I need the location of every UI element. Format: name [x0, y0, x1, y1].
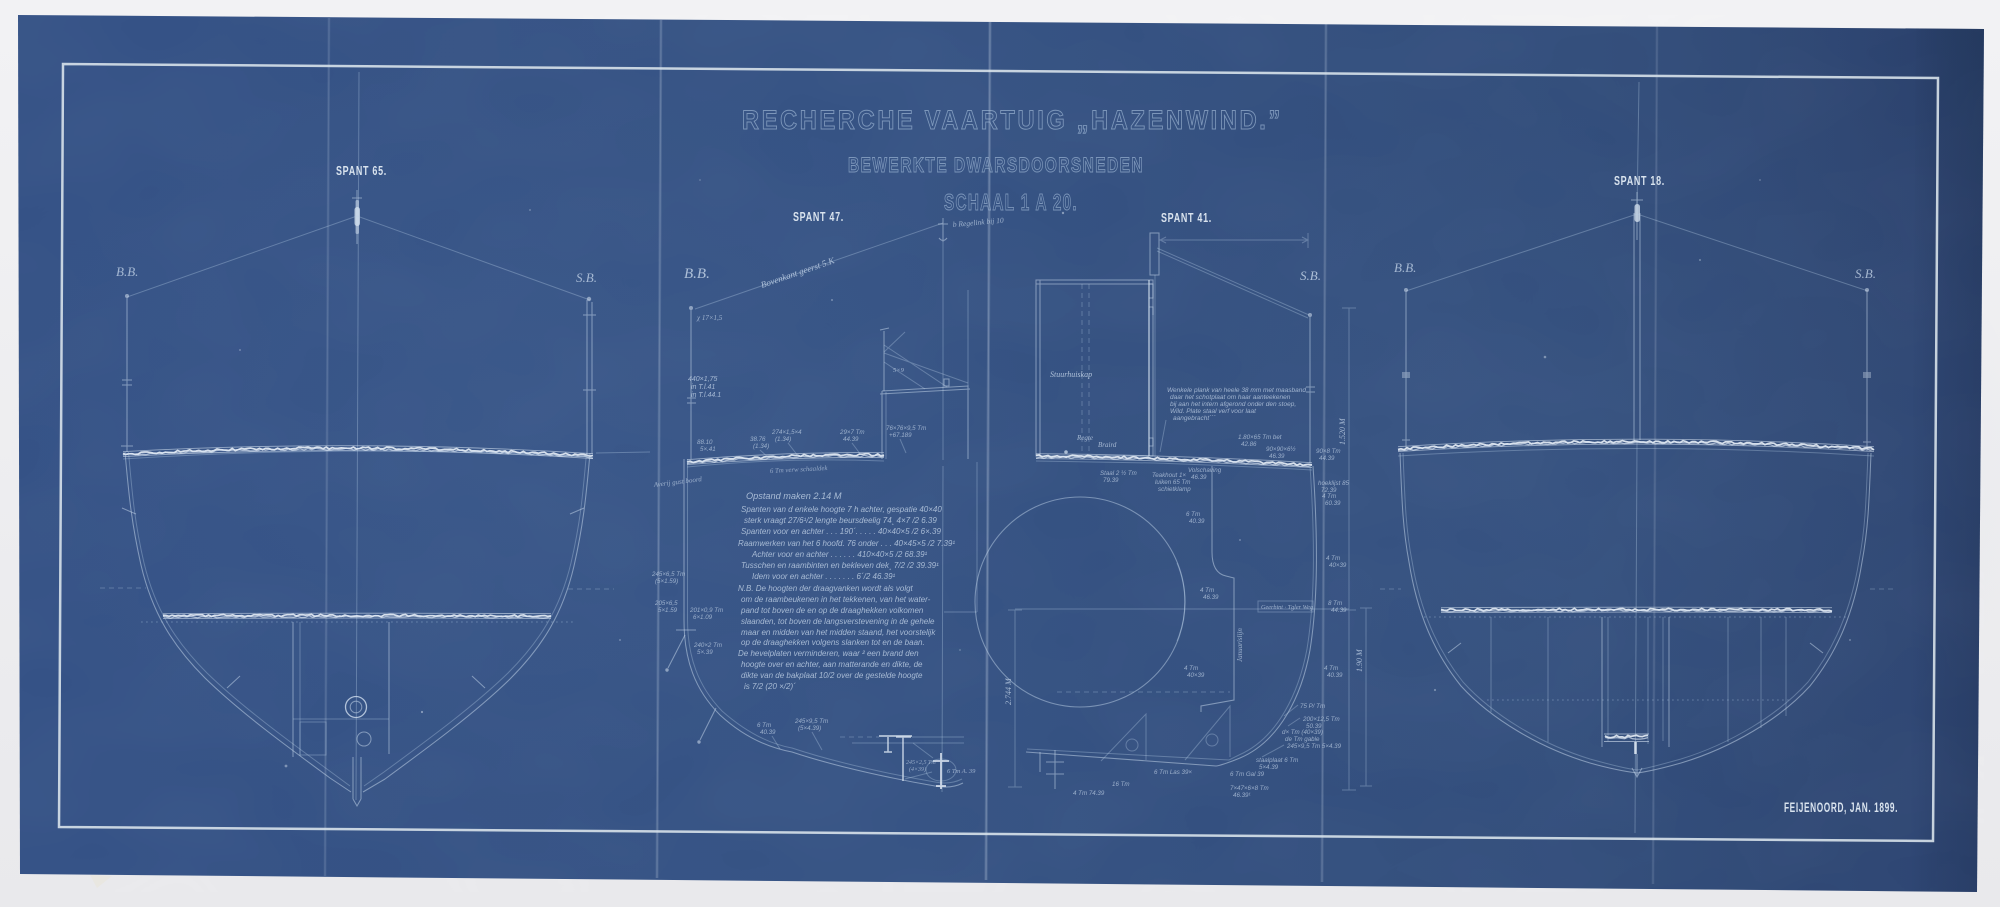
svg-text:5×4.39: 5×4.39 [1259, 764, 1279, 771]
svg-text:5×.41: 5×.41 [700, 446, 716, 453]
svg-text:pand tot boven de en op de dra: pand tot boven de en op de draaghekken v… [740, 606, 924, 615]
svg-text:46.39: 46.39 [1269, 453, 1285, 460]
svg-text:75 P/ Tm: 75 P/ Tm [1300, 703, 1325, 710]
svg-text:daar het schotplaat om haar aa: daar het schotplaat om haar aanteekenen [1170, 394, 1291, 401]
svg-text:maar en midden van het midden: maar en midden van het midden staand, he… [741, 628, 936, 637]
svg-text:4 Tm: 4 Tm [1200, 587, 1214, 594]
svg-text:in T.l.44.1: in T.l.44.1 [691, 392, 721, 399]
svg-text:(5×1.59): (5×1.59) [655, 578, 678, 585]
svg-text:Wenkele plank van heele 38 mm: Wenkele plank van heele 38 mm met maasba… [1167, 387, 1306, 394]
svg-text:Raamwerken van het 6 hoofd. 76: Raamwerken van het 6 hoofd. 76 onder . .… [738, 539, 955, 548]
svg-text:+67.189: +67.189 [889, 432, 912, 439]
svg-text:BEWERKTE DWARSDOORSNEDEN: BEWERKTE DWARSDOORSNEDEN [848, 153, 1144, 177]
svg-text:2.744 M: 2.744 M [1004, 677, 1013, 705]
svg-text:4 Tm: 4 Tm [1184, 665, 1198, 672]
svg-text:6 Tm A. 39: 6 Tm A. 39 [947, 768, 976, 775]
svg-text:200×12,5 Tm: 200×12,5 Tm [1302, 716, 1340, 723]
svg-text:SPANT 65.: SPANT 65. [336, 164, 387, 178]
svg-text:1.90 M: 1.90 M [1355, 648, 1364, 672]
svg-text:Regte: Regte [1076, 434, 1093, 442]
svg-text:6×1.09: 6×1.09 [693, 614, 713, 621]
svg-text:40.39: 40.39 [1327, 672, 1343, 679]
svg-text:om de raambeukenen in het tekk: om de raambeukenen in het tekkenen, van … [741, 595, 931, 604]
svg-text:Tusschen en raambinten en bekl: Tusschen en raambinten en bekleven dek¸ … [741, 561, 939, 570]
svg-text:6 Tm Las 39×: 6 Tm Las 39× [1154, 769, 1192, 776]
svg-text:245×6,5 Tm: 245×6,5 Tm [651, 571, 685, 578]
svg-text:Achter voor en achter . . . .: Achter voor en achter . . . . . . 410×40… [751, 550, 928, 559]
svg-text:S.B.: S.B. [1855, 266, 1876, 281]
svg-text:8 Tm: 8 Tm [1328, 600, 1342, 607]
svg-text:40×39: 40×39 [1187, 672, 1205, 679]
svg-text:4 Tm: 4 Tm [1326, 555, 1340, 562]
svg-text:90×90×6½: 90×90×6½ [1266, 446, 1296, 453]
svg-text:4 Tm: 4 Tm [1322, 493, 1336, 500]
svg-text:SPANT 18.: SPANT 18. [1614, 174, 1665, 188]
svg-text:6 Tm: 6 Tm [757, 722, 771, 729]
svg-text:4 Tm 74.39: 4 Tm 74.39 [1073, 790, 1105, 797]
svg-text:16 Tm: 16 Tm [1112, 781, 1130, 788]
svg-text:dikte van de bakplaat 10/2 ove: dikte van de bakplaat 10/2 over de geste… [741, 671, 923, 680]
svg-text:(1.34): (1.34) [775, 436, 791, 443]
svg-text:29×7 Tm: 29×7 Tm [839, 429, 865, 436]
svg-text:1.80×65 Tm bet: 1.80×65 Tm bet [1238, 434, 1282, 441]
svg-text:is 7/2 (20 ×/2)´: is 7/2 (20 ×/2)´ [744, 682, 796, 691]
svg-text:SCHAAL 1 A 20.: SCHAAL 1 A 20. [944, 189, 1078, 215]
svg-text:79.39: 79.39 [1103, 477, 1119, 484]
svg-text:(1.34): (1.34) [753, 443, 769, 450]
svg-text:Spanten voor en achter . . .: Spanten voor en achter . . . 190´. . . .… [741, 527, 941, 536]
svg-text:χ 17×1,5: χ 17×1,5 [696, 314, 723, 322]
svg-text:245×2,5 Tm: 245×2,5 Tm [906, 759, 936, 766]
svg-text:S.B.: S.B. [1300, 268, 1321, 283]
svg-text:De hevelplaten verminderen, wa: De hevelplaten verminderen, waar ² een b… [738, 649, 919, 658]
svg-text:76×76×9,5 Tm: 76×76×9,5 Tm [886, 425, 926, 432]
svg-text:B.B.: B.B. [1394, 260, 1416, 275]
svg-text:Wild. Plate staal verf voor la: Wild. Plate staal verf voor laat [1170, 408, 1257, 415]
svg-text:44.39: 44.39 [1319, 455, 1335, 462]
svg-text:bij aan het intern afgerond on: bij aan het intern afgerond onder den st… [1170, 401, 1296, 408]
svg-text:90×8 Tm: 90×8 Tm [1316, 448, 1341, 455]
svg-text:Stuurhuiskap: Stuurhuiskap [1050, 370, 1092, 379]
svg-text:Januarislijn: Januarislijn [1236, 628, 1244, 662]
svg-text:88.10: 88.10 [697, 439, 713, 446]
svg-text:46.39¹: 46.39¹ [1233, 792, 1251, 799]
svg-text:44.39: 44.39 [843, 436, 859, 443]
svg-text:Spanten van d enkele hoogte 7: Spanten van d enkele hoogte 7 h achter, … [741, 505, 942, 514]
svg-text:Geerbint · Tgler Weg: Geerbint · Tgler Weg [1261, 604, 1313, 611]
svg-text:Teakhout 1×: Teakhout 1× [1152, 472, 1186, 479]
svg-text:245×9,5 Tm 5×4.39: 245×9,5 Tm 5×4.39 [1286, 743, 1342, 750]
svg-text:46.39: 46.39 [1203, 594, 1219, 601]
svg-text:de Tm gable: de Tm gable [1285, 736, 1320, 743]
svg-text:Volschaving: Volschaving [1188, 467, 1222, 474]
svg-text:44.39: 44.39 [1331, 607, 1347, 614]
svg-text:op de draaghekken volgens slan: op de draaghekken volgens slanken tot en… [741, 638, 925, 647]
svg-text:RECHERCHE VAARTUIG „HAZENWIND.: RECHERCHE VAARTUIG „HAZENWIND.” [742, 105, 1283, 135]
svg-text:S.B.: S.B. [576, 270, 597, 285]
svg-text:4 Tm: 4 Tm [1324, 665, 1338, 672]
svg-text:(4×39): (4×39) [909, 766, 926, 773]
svg-text:in T.l.41: in T.l.41 [691, 384, 715, 391]
svg-text:luiken 65 Tm: luiken 65 Tm [1155, 479, 1190, 486]
svg-text:hoogte over en achter, aan mat: hoogte over en achter, aan matterande en… [741, 660, 923, 669]
svg-text:7×47×6×8 Tm: 7×47×6×8 Tm [1230, 785, 1269, 792]
svg-text:42.86: 42.86 [1241, 441, 1257, 448]
svg-text:Idem voor en achter . . . .: Idem voor en achter . . . . . . . 6´/2 4… [752, 572, 896, 581]
svg-text:40×39: 40×39 [1329, 562, 1347, 569]
svg-text:60.39: 60.39 [1325, 500, 1341, 507]
svg-text:Braird: Braird [1098, 441, 1117, 449]
svg-text:5×1.59: 5×1.59 [658, 607, 678, 614]
svg-text:hoeklijst 85: hoeklijst 85 [1318, 480, 1350, 487]
svg-text:205×6,5: 205×6,5 [654, 600, 678, 607]
svg-text:201×0,9 Tm: 201×0,9 Tm [689, 607, 723, 614]
svg-text:slaanden, tot boven de langsve: slaanden, tot boven de langsverstevening… [741, 617, 935, 626]
svg-text:440×1,75: 440×1,75 [688, 376, 717, 383]
svg-text:FEIJENOORD, JAN. 1899.: FEIJENOORD, JAN. 1899. [1784, 800, 1898, 815]
svg-text:schietklamp: schietklamp [1158, 486, 1191, 493]
svg-text:38.76: 38.76 [750, 436, 766, 443]
svg-text:aangebracht´´´: aangebracht´´´ [1173, 415, 1216, 422]
svg-text:B.B.: B.B. [116, 264, 138, 279]
svg-text:Opstand maken 2.14 M: Opstand maken 2.14 M [746, 491, 842, 501]
svg-text:staalplaat 6 Tm: staalplaat 6 Tm [1256, 757, 1298, 764]
svg-text:sterk vraagt 27/6¹/2 lengte be: sterk vraagt 27/6¹/2 lengte beursdeelig … [744, 516, 937, 525]
svg-text:274×1,5×4: 274×1,5×4 [771, 429, 802, 436]
svg-text:(5×4.39): (5×4.39) [798, 725, 821, 732]
svg-text:B.B.: B.B. [684, 266, 710, 282]
svg-text:SPANT 41.: SPANT 41. [1161, 211, 1212, 225]
svg-text:d× Tm (40×39): d× Tm (40×39) [1282, 729, 1323, 736]
svg-text:40.39: 40.39 [1189, 518, 1205, 525]
svg-text:40.39: 40.39 [760, 729, 776, 736]
svg-text:46.39: 46.39 [1191, 474, 1207, 481]
svg-text:5×9: 5×9 [893, 367, 905, 374]
svg-text:Staal 2 ½ Tm: Staal 2 ½ Tm [1100, 470, 1137, 477]
svg-text:6 Tm Gal 39: 6 Tm Gal 39 [1230, 771, 1265, 778]
svg-text:6 Tm: 6 Tm [1186, 511, 1200, 518]
svg-text:5×.39: 5×.39 [697, 649, 713, 656]
svg-text:1.520 M: 1.520 M [1338, 417, 1347, 445]
svg-text:245×9,5 Tm: 245×9,5 Tm [794, 718, 828, 725]
svg-text:N.B. De hoogten der draagvanke: N.B. De hoogten der draagvanken wordt al… [738, 584, 914, 593]
svg-text:SPANT 47.: SPANT 47. [793, 210, 844, 224]
svg-text:240×2 Tm: 240×2 Tm [693, 642, 722, 649]
